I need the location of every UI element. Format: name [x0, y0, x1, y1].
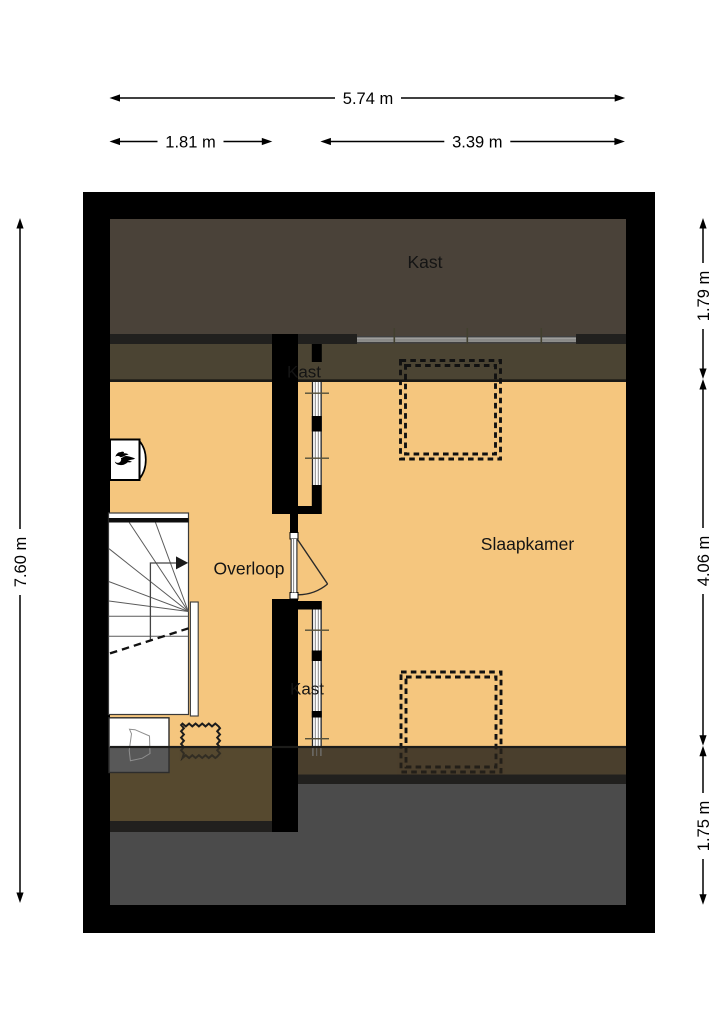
svg-text:Kast: Kast	[407, 252, 442, 272]
svg-text:Kast: Kast	[290, 680, 324, 699]
svg-text:Kast: Kast	[287, 363, 321, 382]
svg-text:1.81 m: 1.81 m	[165, 134, 215, 152]
svg-text:7.60 m: 7.60 m	[12, 537, 30, 587]
svg-text:Overloop: Overloop	[213, 559, 284, 579]
svg-text:3.39 m: 3.39 m	[452, 134, 502, 152]
svg-text:Slaapkamer: Slaapkamer	[481, 534, 575, 554]
svg-text:4.06 m: 4.06 m	[695, 536, 713, 586]
svg-text:1.79 m: 1.79 m	[695, 271, 713, 321]
svg-text:5.74 m: 5.74 m	[343, 90, 393, 108]
svg-text:1.75 m: 1.75 m	[695, 801, 713, 851]
